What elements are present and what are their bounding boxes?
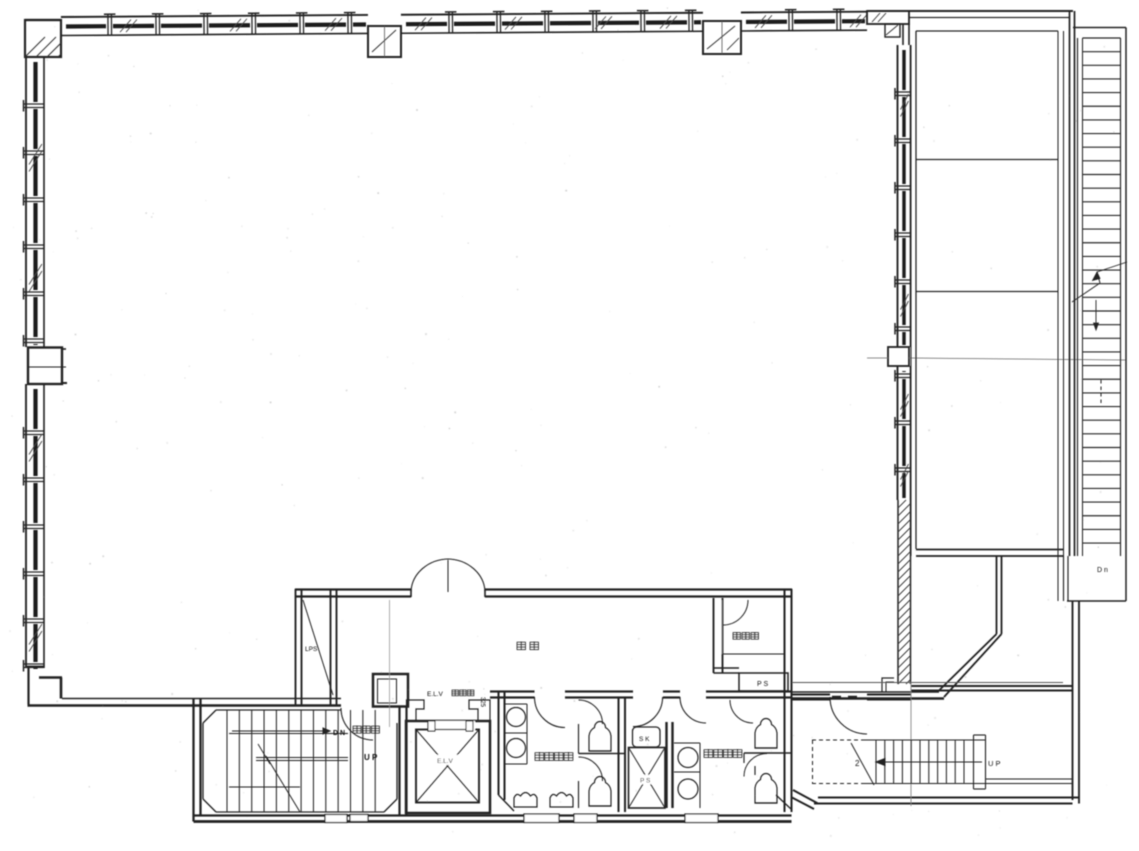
svg-text:LPS: LPS <box>305 646 318 653</box>
svg-text:E.L.V: E.L.V <box>437 758 454 765</box>
svg-text:D N: D N <box>333 730 345 737</box>
svg-text:P S: P S <box>640 778 651 785</box>
svg-text:2: 2 <box>855 759 860 768</box>
svg-text:P S: P S <box>757 681 768 688</box>
svg-text:325: 325 <box>479 697 485 708</box>
svg-text:E.L.V: E.L.V <box>427 691 444 698</box>
svg-text:U P: U P <box>988 759 1001 768</box>
svg-text:D n: D n <box>1097 567 1108 574</box>
svg-text:U P: U P <box>364 753 378 762</box>
svg-text:S K: S K <box>639 736 650 743</box>
